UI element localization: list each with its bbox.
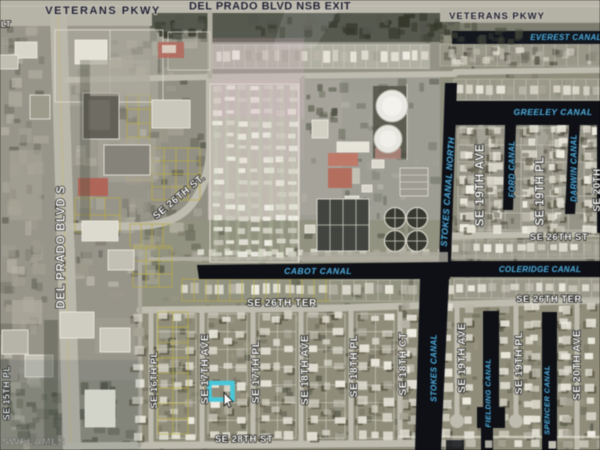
svg-text:SWFLAMLS: SWFLAMLS [2,436,66,448]
